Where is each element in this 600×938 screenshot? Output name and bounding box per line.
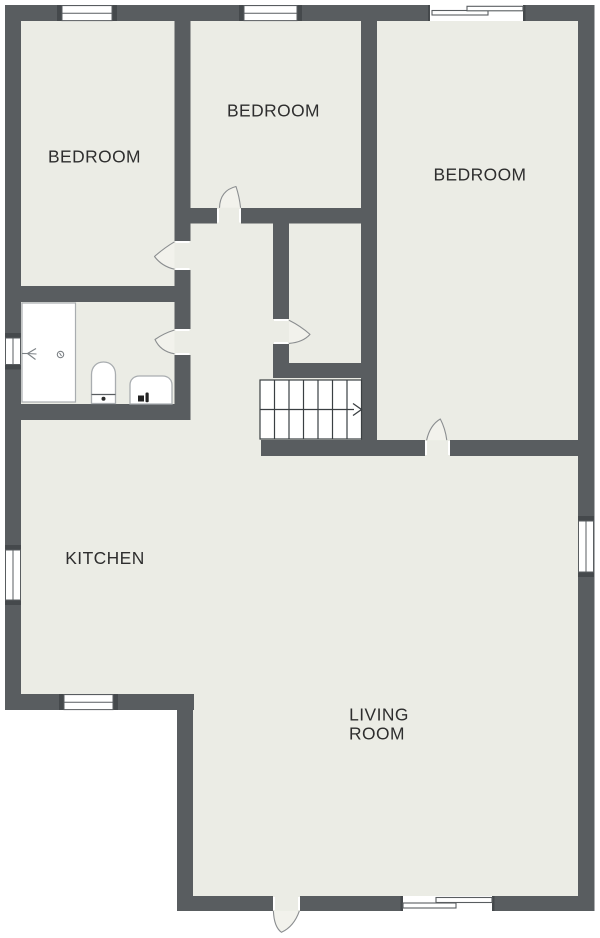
svg-text:ROOM: ROOM (349, 723, 405, 743)
svg-text:BEDROOM: BEDROOM (433, 164, 526, 184)
svg-text:BEDROOM: BEDROOM (48, 147, 141, 167)
svg-text:KITCHEN: KITCHEN (65, 548, 144, 568)
svg-text:LIVING: LIVING (349, 704, 409, 724)
svg-text:BEDROOM: BEDROOM (227, 100, 320, 120)
